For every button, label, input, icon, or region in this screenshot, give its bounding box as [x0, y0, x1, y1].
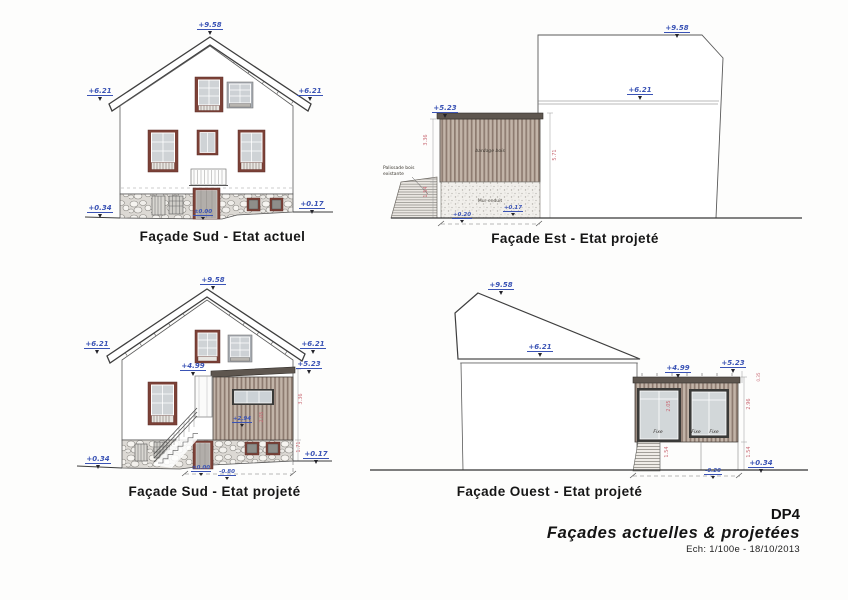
dim-arrow-icon	[499, 291, 503, 295]
facade-sud-projete: +9.58 +6.21 +6.21 +5.23 +4.99 +2.94 +0.3…	[60, 272, 352, 507]
dim-arrow-icon	[201, 217, 205, 220]
dim-ridge: +9.58	[198, 276, 228, 290]
dim-value: +4.99	[180, 362, 205, 371]
dim-ridge: +9.58	[662, 24, 692, 38]
dim-value: +9.58	[197, 21, 222, 30]
terrace-railing	[189, 169, 228, 186]
dim-arrow-icon	[731, 369, 735, 373]
dim-pit: -0.80	[212, 469, 242, 480]
scanned-plan-sheet: +9.58 +6.21 +6.21 +0.34 +0.17 ±0.00 Faça…	[0, 0, 848, 600]
floor-window-center	[197, 130, 218, 155]
dim-ground-left: +0.34	[83, 455, 113, 469]
dim-value: +6.21	[84, 340, 109, 349]
dim-value: +0.34	[85, 455, 110, 464]
dim-base: +0.17	[498, 205, 528, 216]
dim-extension-top: +5.23	[718, 359, 748, 373]
dim-arrow-icon	[443, 114, 447, 118]
palisade-label-line1: Palissade bois	[383, 166, 414, 171]
palisade-label: Palissade boisexistante	[383, 166, 435, 177]
floor-window-right	[238, 130, 265, 172]
red-dim-window: 2.05	[259, 408, 265, 426]
dim-value: +6.21	[297, 87, 322, 96]
dim-landing: +2.94	[227, 416, 257, 427]
dim-eave-left: +6.21	[85, 87, 115, 101]
red-dim-right-upper: 2.96	[746, 395, 752, 413]
dim-value: +0.20	[452, 212, 472, 219]
dim-value: +5.23	[720, 359, 745, 368]
facade-ouest-projete: +9.58 +6.21 +4.99 +5.23 -0.20 +0.34 Fixe…	[362, 275, 814, 507]
red-dim-right-lower: 1.54	[746, 443, 752, 461]
dim-value: +4.99	[665, 364, 690, 373]
drawing-title: Façade Ouest - Etat projeté	[442, 484, 657, 499]
dim-ground-right: +0.17	[301, 450, 331, 464]
facade-est-projete-linework	[370, 20, 815, 255]
fixe-label-2: Fixe	[688, 430, 704, 436]
dim-value: +0.17	[303, 450, 328, 459]
dim-arrow-icon	[199, 473, 203, 476]
basement	[660, 442, 738, 470]
dim-extension-top: +5.23	[430, 104, 460, 118]
dim-value: +6.21	[627, 86, 652, 95]
dim-ground-left: +0.34	[85, 204, 115, 218]
dim-eave: +6.21	[525, 343, 555, 357]
red-dim-right-lower: 1.71	[296, 438, 302, 456]
floor-window-left	[148, 130, 178, 172]
dim-arrow-icon	[225, 477, 229, 480]
dim-arrow-icon	[511, 213, 515, 216]
dim-value: +0.17	[503, 205, 523, 212]
dim-extension-top: +5.23	[294, 360, 324, 374]
dim-arrow-icon	[638, 96, 642, 100]
title-block: DP4 Façades actuelles & projetées Ech: 1…	[460, 507, 800, 556]
fixe-label-3: Fixe	[706, 430, 722, 436]
dim-value: ±0.00	[193, 209, 213, 216]
dim-arrow-icon	[211, 286, 215, 290]
facade-est-projete: +9.58 +6.21 +5.23 +0.17 +0.20 Palissade …	[370, 20, 815, 255]
dim-value: +5.23	[432, 104, 457, 113]
dim-arrow-icon	[240, 424, 244, 427]
gable-window-right	[228, 335, 252, 362]
dim-value: +9.58	[664, 24, 689, 33]
dim-arrow-icon	[711, 476, 715, 479]
sheet-title: Façades actuelles & projetées	[460, 523, 800, 543]
dim-arrow-icon	[308, 97, 312, 101]
dim-arrow-icon	[98, 97, 102, 101]
dim-eave-right: +6.21	[295, 87, 325, 101]
dim-ridge: +9.58	[486, 281, 516, 295]
red-dim-left-upper: 3.36	[423, 131, 429, 149]
dim-eave: +6.21	[625, 86, 655, 100]
sheet-code: DP4	[460, 507, 800, 523]
dim-value: -0.80	[218, 469, 236, 476]
dim-eave-left: +6.21	[82, 340, 112, 354]
dim-value: ±0.00	[191, 465, 211, 472]
dim-arrow-icon	[307, 370, 311, 374]
dim-value: +6.21	[87, 87, 112, 96]
facade-sud-actuel: +9.58 +6.21 +6.21 +0.34 +0.17 ±0.00 Faça…	[85, 18, 360, 248]
drawing-title: Façade Sud - Etat projeté	[112, 484, 317, 499]
house-wall	[538, 35, 723, 218]
dim-ground-right: +0.17	[297, 200, 327, 214]
sheet-scale-date: Ech: 1/100e - 18/10/2013	[460, 543, 800, 556]
wall	[461, 363, 637, 470]
dim-value: +2.94	[232, 416, 252, 423]
floor-window-left	[148, 382, 177, 425]
red-dim-parapet: 0.35	[756, 368, 762, 386]
drawing-title: Façade Est - Etat projeté	[470, 231, 680, 246]
red-dim-right-upper: 3.36	[298, 390, 304, 408]
dim-ground-right: +0.34	[746, 459, 776, 473]
gable-window-left	[195, 330, 220, 363]
dim-value: +0.34	[748, 459, 773, 468]
dim-arrow-icon	[311, 350, 315, 354]
drawing-title: Façade Sud - Etat actuel	[125, 229, 320, 244]
red-dim-right: 5.71	[552, 146, 558, 164]
palisade	[391, 177, 437, 218]
dim-door-top: +4.99	[178, 362, 208, 376]
gable-window-left	[195, 77, 223, 112]
dim-arrow-icon	[314, 460, 318, 464]
red-dim-left-lower: 1.54	[423, 183, 429, 201]
dim-ridge: +9.58	[195, 21, 225, 35]
dim-door-sill: ±0.00	[188, 209, 218, 220]
dim-value: +5.23	[296, 360, 321, 369]
dim-door-top: +4.99	[663, 364, 693, 378]
red-dim-left-lower: 1.54	[664, 443, 670, 461]
dim-arrow-icon	[208, 31, 212, 35]
gable-window-right	[227, 82, 253, 108]
dim-pit: -0.20	[698, 468, 728, 479]
dim-value: +9.58	[200, 276, 225, 285]
dim-arrow-icon	[460, 220, 464, 223]
dim-arrow-icon	[759, 469, 763, 473]
red-dim-window: 2.05	[666, 397, 672, 415]
dim-arrow-icon	[95, 350, 99, 354]
dim-value: +0.17	[299, 200, 324, 209]
mur-enduit-label: Mur enduit	[468, 199, 512, 205]
dim-value: +6.21	[300, 340, 325, 349]
dim-arrow-icon	[310, 210, 314, 214]
dim-eave-right: +6.21	[298, 340, 328, 354]
dim-arrow-icon	[96, 465, 100, 469]
dim-arrow-icon	[538, 353, 542, 357]
stairs	[633, 442, 660, 471]
dim-arrow-icon	[675, 34, 679, 38]
dim-value: +9.58	[488, 281, 513, 290]
dim-value: +6.21	[527, 343, 552, 352]
dim-ground: +0.20	[447, 212, 477, 223]
dim-arrow-icon	[676, 374, 680, 378]
dim-value: +0.34	[87, 204, 112, 213]
dim-value: -0.20	[704, 468, 722, 475]
fixe-label-1: Fixe	[650, 430, 666, 436]
dim-arrow-icon	[98, 214, 102, 218]
palisade-label-line2: existante	[383, 172, 404, 177]
bardage-label: bardage bois	[468, 149, 512, 155]
dim-arrow-icon	[191, 372, 195, 376]
